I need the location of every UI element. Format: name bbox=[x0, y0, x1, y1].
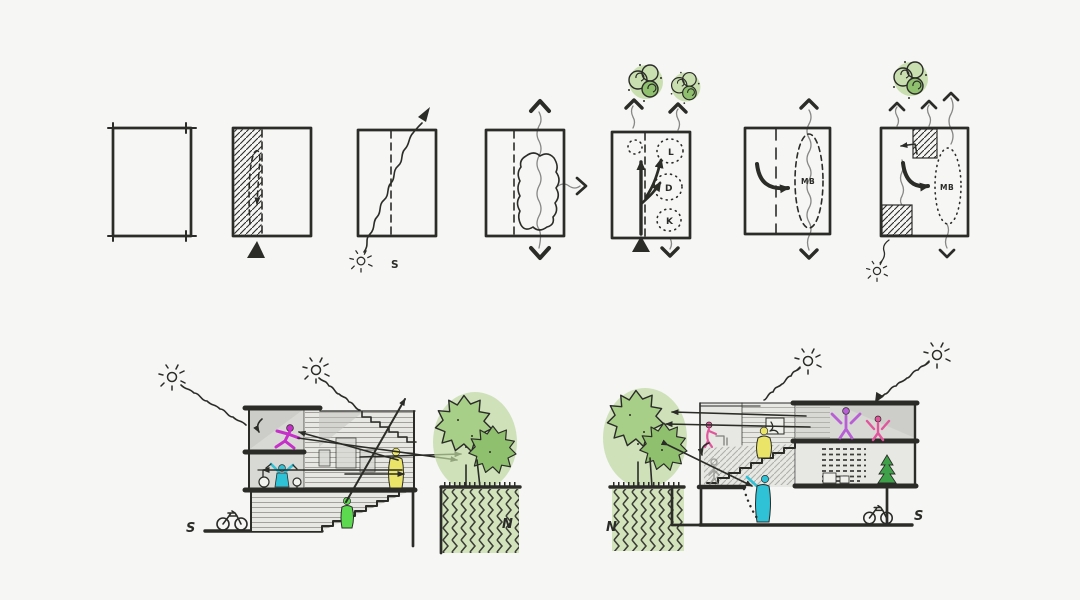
bubble-tree-icon bbox=[628, 64, 663, 102]
diagram-program-ldk: L D K bbox=[612, 64, 700, 256]
hatched-strip bbox=[235, 130, 262, 235]
sun-icon bbox=[795, 349, 821, 374]
mb-label: MB bbox=[940, 183, 954, 192]
diagram-courtyard-ventilation bbox=[486, 101, 586, 258]
hatched-core-lower bbox=[882, 205, 912, 235]
diagram-sun-path: S bbox=[350, 107, 436, 272]
diagram-entry-strip bbox=[233, 128, 311, 258]
entry-space bbox=[628, 140, 642, 154]
plan-outline bbox=[113, 128, 191, 236]
sun-ray bbox=[181, 385, 246, 425]
dining-label: D bbox=[665, 184, 672, 194]
concept-diagram-row: S L D K bbox=[108, 61, 968, 281]
vent-arrow-down bbox=[801, 250, 817, 258]
entry-marker-icon bbox=[247, 241, 265, 258]
air-arrow-up bbox=[531, 101, 549, 111]
vent-arrow-up bbox=[801, 100, 817, 108]
diagram-site-outline bbox=[108, 123, 196, 241]
south-label: S bbox=[391, 259, 399, 271]
sketch-canvas: S L D K bbox=[0, 0, 1080, 600]
section-right: N bbox=[603, 343, 950, 551]
diagram-master-bedroom: MB bbox=[745, 100, 830, 258]
air-arrow-down bbox=[531, 248, 549, 258]
support-walls bbox=[701, 486, 887, 525]
sun-icon bbox=[867, 261, 888, 281]
plan-outline bbox=[358, 130, 436, 236]
plan-outline bbox=[612, 132, 690, 238]
section-left: S bbox=[159, 358, 520, 553]
sun-icon bbox=[159, 365, 185, 390]
sun-ray bbox=[319, 378, 360, 410]
north-label: N bbox=[606, 520, 617, 535]
sun-ray-arrow bbox=[876, 362, 929, 401]
sun-icon bbox=[350, 251, 372, 272]
sun-icon bbox=[924, 343, 950, 368]
architecture-sketch-page: S L D K bbox=[0, 0, 1080, 600]
flow-arrow bbox=[757, 164, 788, 188]
sun-icon bbox=[303, 358, 329, 383]
south-label: S bbox=[914, 509, 923, 524]
building-section bbox=[245, 408, 416, 546]
north-garden: N bbox=[433, 392, 520, 553]
bicycle-icon bbox=[217, 511, 247, 530]
south-label: S bbox=[186, 521, 195, 536]
sun-path-line bbox=[364, 123, 422, 252]
north-label: N bbox=[502, 517, 513, 532]
living-label: L bbox=[668, 148, 674, 158]
kitchen-label: K bbox=[666, 217, 674, 227]
vent-arrow-up bbox=[626, 100, 642, 108]
sun-path-arrowhead bbox=[418, 107, 430, 122]
plan-outline bbox=[486, 130, 564, 236]
sun-ray bbox=[764, 368, 800, 400]
bubble-tree-icon bbox=[893, 61, 928, 99]
diagram-final-scheme: MB bbox=[867, 61, 968, 281]
bubble-tree-icon bbox=[671, 72, 701, 104]
building-section bbox=[699, 403, 917, 525]
air-arrow-right bbox=[577, 178, 586, 194]
flow-arrow bbox=[903, 163, 928, 186]
